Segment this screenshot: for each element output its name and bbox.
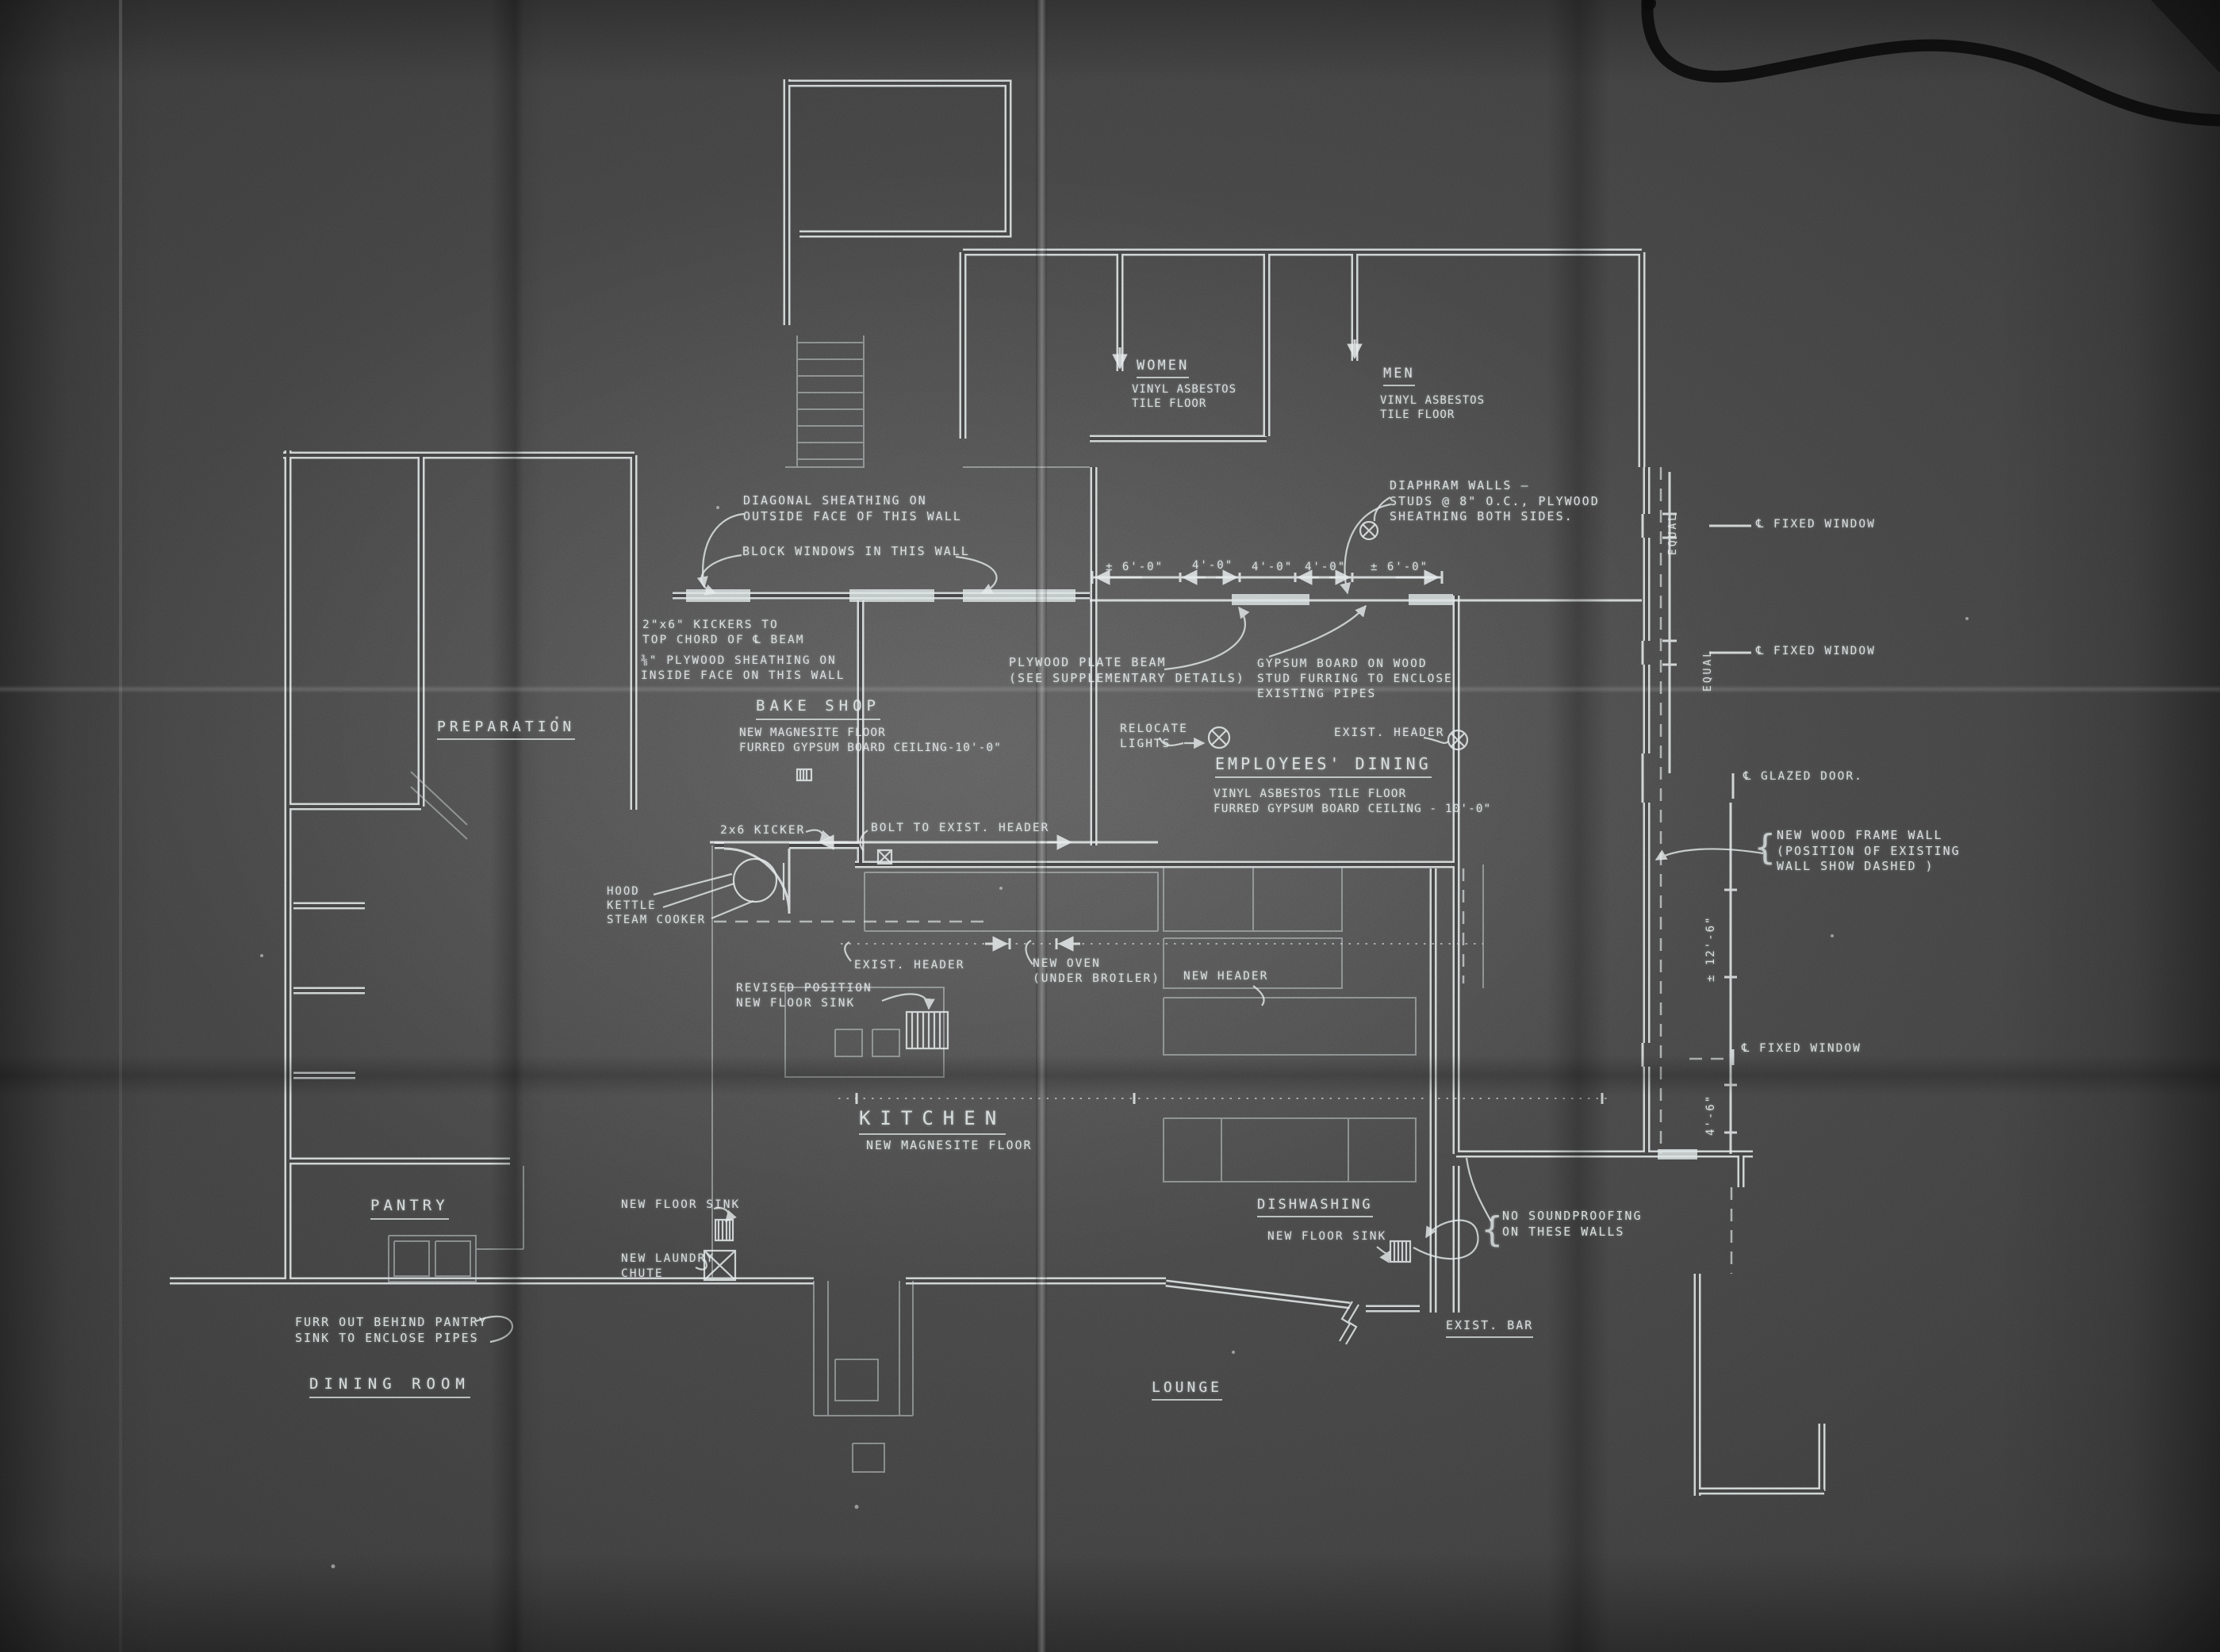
room-title-kitchen: KITCHEN <box>859 1106 1006 1135</box>
dim-6-0-left: ± 6'-0" <box>1106 560 1164 574</box>
blueprint-photo: WOMEN VINYL ASBESTOS TILE FLOOR MEN VINY… <box>0 0 2220 1652</box>
note-brace-soundproofing: { <box>1482 1207 1505 1252</box>
room-title-dining-room: DINING ROOM <box>309 1374 470 1398</box>
note-new-floor-sink-kitchen: NEW FLOOR SINK <box>621 1198 740 1213</box>
room-title-pantry: PANTRY <box>370 1196 449 1220</box>
room-floor-employees-dining: VINYL ASBESTOS TILE FLOOR FURRED GYPSUM … <box>1214 787 1491 817</box>
note-no-soundproofing: NO SOUNDPROOFING ON THESE WALLS <box>1502 1209 1643 1240</box>
label-fixed-window-2: ℄ FIXED WINDOW <box>1756 644 1876 659</box>
room-title-exist-bar: EXIST. BAR <box>1446 1318 1533 1338</box>
dim-equal-upper: EQUAL <box>1667 512 1681 555</box>
label-fixed-window-1: ℄ FIXED WINDOW <box>1756 517 1876 532</box>
room-title-men: MEN <box>1383 365 1415 386</box>
dim-4-6-vertical: 4'-6" <box>1704 1094 1718 1136</box>
note-exist-header-kitchen: EXIST. HEADER <box>854 958 965 973</box>
room-floor-bake-shop: NEW MAGNESITE FLOOR FURRED GYPSUM BOARD … <box>739 726 1002 756</box>
film-grain-overlay <box>0 0 2220 1652</box>
note-hood-kettle-steam-cooker: HOOD KETTLE STEAM COOKER <box>607 884 706 928</box>
note-block-windows: BLOCK WINDOWS IN THIS WALL <box>742 544 970 560</box>
label-glazed-door: ℄ GLAZED DOOR. <box>1743 769 1863 784</box>
note-laundry-chute: NEW LAUNDRY CHUTE <box>621 1251 715 1282</box>
note-gypsum-board: GYPSUM BOARD ON WOOD STUD FURRING TO ENC… <box>1257 657 1453 702</box>
dim-4-0-c: 4'-0" <box>1305 560 1346 574</box>
note-new-floor-sink-dishwashing: NEW FLOOR SINK <box>1267 1229 1386 1244</box>
room-title-lounge: LOUNGE <box>1152 1378 1222 1401</box>
dim-6-0-right: ± 6'-0" <box>1371 560 1428 574</box>
note-new-header: NEW HEADER <box>1183 969 1268 984</box>
room-floor-men: VINYL ASBESTOS TILE FLOOR <box>1380 393 1485 422</box>
label-fixed-window-3: ℄ FIXED WINDOW <box>1742 1041 1862 1056</box>
dim-4-0-b: 4'-0" <box>1252 560 1293 574</box>
note-exist-header-dining: EXIST. HEADER <box>1334 726 1445 741</box>
room-title-preparation: PREPARATION <box>437 718 575 740</box>
room-title-dishwashing: DISHWASHING <box>1257 1196 1373 1217</box>
note-furr-out: FURR OUT BEHIND PANTRY SINK TO ENCLOSE P… <box>295 1315 488 1346</box>
room-title-bake-shop: BAKE SHOP <box>756 696 880 720</box>
note-kickers: 2"x6" KICKERS TO TOP CHORD OF ℄ BEAM <box>642 618 804 648</box>
note-diaphram-walls: DIAPHRAM WALLS — STUDS @ 8" O.C., PLYWOO… <box>1390 478 1600 525</box>
dim-12-6-vertical: ± 12'-6" <box>1704 916 1718 982</box>
note-revised-sink: REVISED POSITION NEW FLOOR SINK <box>736 981 872 1011</box>
dim-4-0-a: 4'-0" <box>1192 558 1233 573</box>
note-kicker: 2x6 KICKER <box>720 823 805 838</box>
note-plywood-sheathing: ⅜" PLYWOOD SHEATHING ON INSIDE FACE ON T… <box>641 654 845 684</box>
note-diagonal-sheathing: DIAGONAL SHEATHING ON OUTSIDE FACE OF TH… <box>743 493 962 524</box>
room-title-women: WOMEN <box>1137 357 1189 378</box>
note-plate-beam: PLYWOOD PLATE BEAM (SEE SUPPLEMENTARY DE… <box>1009 655 1245 686</box>
room-floor-kitchen: NEW MAGNESITE FLOOR <box>866 1138 1033 1154</box>
note-new-wood-frame-wall: NEW WOOD FRAME WALL (POSITION OF EXISTIN… <box>1777 828 1961 875</box>
dim-equal-lower: EQUAL <box>1702 649 1716 692</box>
blueprint-linework <box>0 0 2220 1652</box>
room-floor-women: VINYL ASBESTOS TILE FLOOR <box>1132 382 1237 411</box>
note-brace-wall: { <box>1754 825 1777 870</box>
room-title-employees-dining: EMPLOYEES' DINING <box>1215 753 1432 778</box>
note-bolt-header: BOLT TO EXIST. HEADER <box>871 821 1049 836</box>
note-new-oven: NEW OVEN (UNDER BROILER) <box>1033 956 1160 987</box>
note-relocate-lights: RELOCATE LIGHTS <box>1120 722 1188 752</box>
